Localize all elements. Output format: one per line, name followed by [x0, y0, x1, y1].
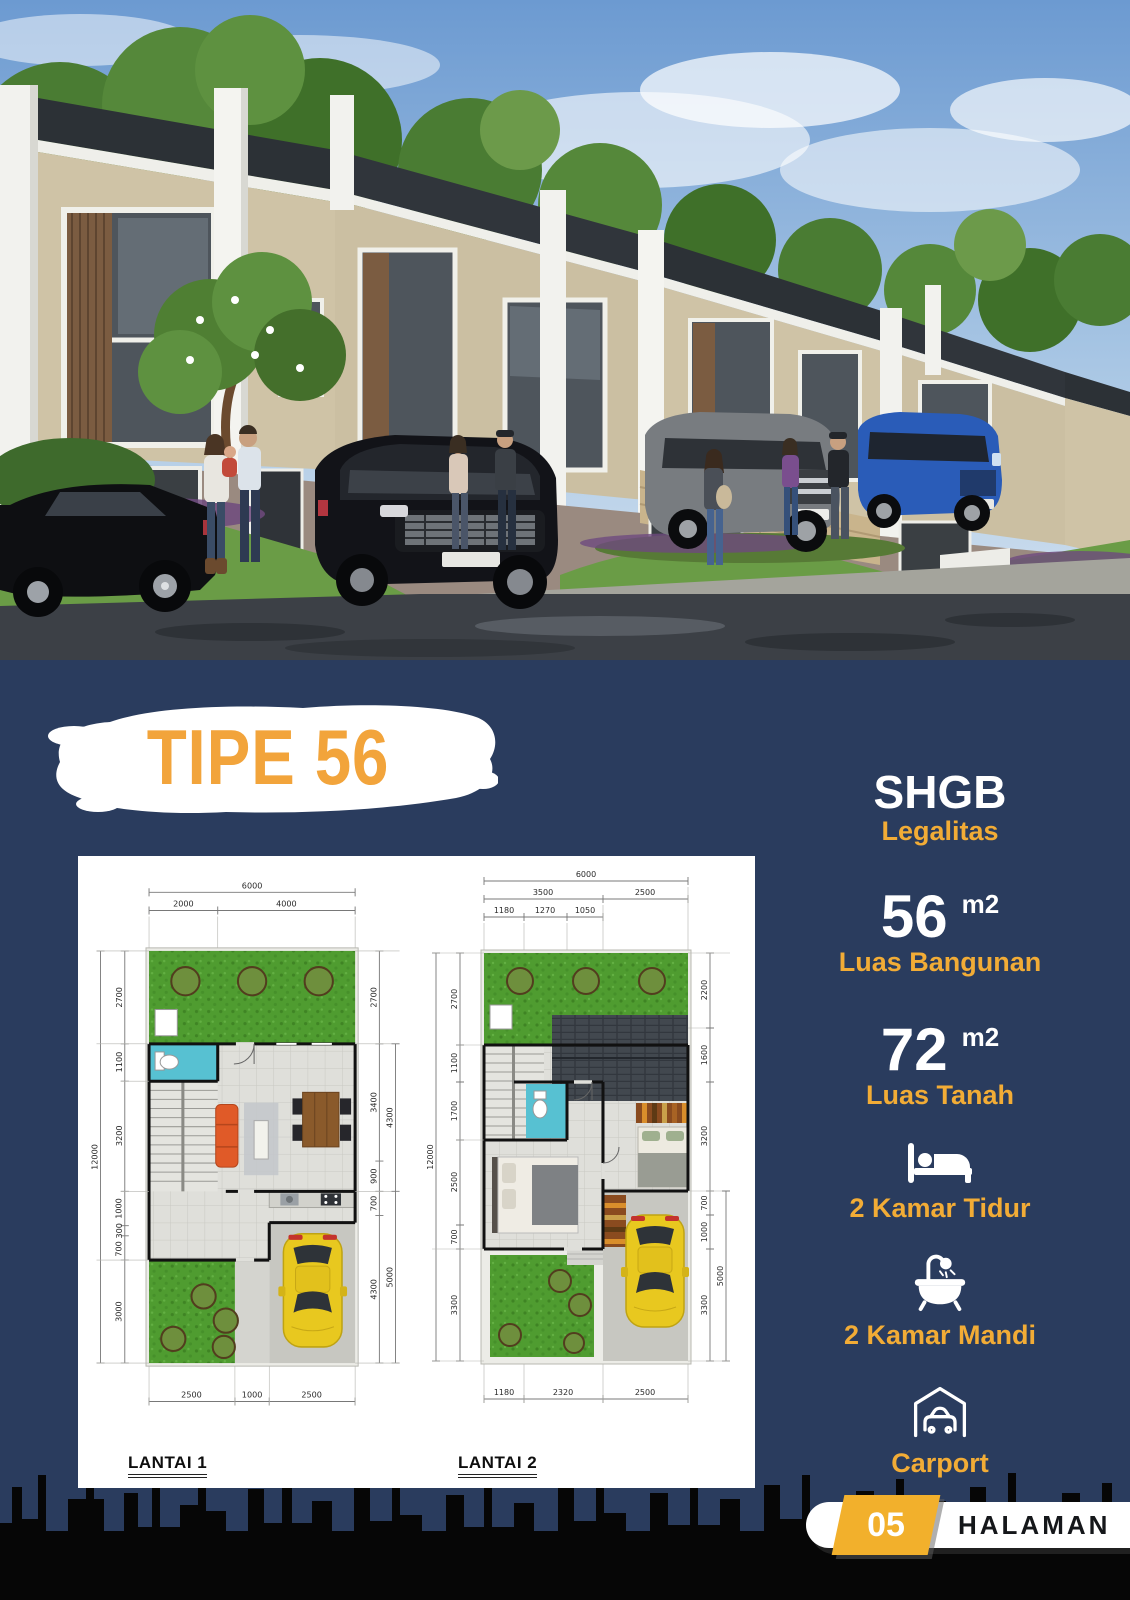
land-area-value: 72 — [881, 1016, 948, 1083]
dim-label: 700 — [368, 1196, 378, 1211]
wardrobe-side — [604, 1195, 626, 1247]
side-path — [235, 1260, 269, 1363]
dim-label: 2000 — [173, 898, 194, 908]
floorplan-lantai-2: 6000 3500 2500 1180 1270 1050 1180 2320 … — [414, 862, 750, 1482]
bed-left — [492, 1157, 578, 1233]
legal-label: Legalitas — [874, 816, 1007, 847]
plan-label-lantai-2: LANTAI 2 — [458, 1453, 537, 1478]
page-number-plate: 05 — [832, 1495, 941, 1555]
dim-label: 5000 — [716, 1266, 725, 1286]
dim-label: 2500 — [450, 1172, 459, 1192]
dim-label: 4300 — [385, 1107, 395, 1128]
dim-label: 6000 — [576, 870, 596, 879]
floorplan-panel: 6000 2000 4000 2500 1000 2500 12000 2700… — [78, 856, 755, 1488]
bed-right — [638, 1127, 688, 1187]
garden-trees — [171, 967, 333, 995]
blue-hatchback — [858, 412, 1002, 531]
dim-label: 4000 — [276, 898, 297, 908]
carport-label: Carport — [891, 1448, 989, 1479]
dim-label: 2500 — [635, 888, 655, 897]
dim-label: 1180 — [494, 906, 514, 915]
page-number: 05 — [838, 1495, 934, 1555]
land-area-label: Luas Tanah — [866, 1080, 1014, 1111]
dim-label: 700 — [114, 1241, 124, 1256]
carport-icon — [910, 1384, 970, 1440]
wardrobe-top — [636, 1103, 688, 1123]
feature-bedrooms: 2 Kamar Tidur — [849, 1141, 1030, 1224]
floorplan-drawing-1: 6000 2000 4000 2500 1000 2500 12000 2700… — [84, 862, 404, 1452]
dim-label: 300 — [114, 1223, 124, 1238]
car-topview — [278, 1234, 347, 1347]
car-topview — [621, 1215, 689, 1327]
kitchen — [269, 1191, 355, 1207]
dim-label: 1000 — [242, 1389, 263, 1399]
gray-suv — [645, 412, 840, 552]
dim-label: 1270 — [535, 906, 555, 915]
spec-legalitas: SHGB Legalitas — [874, 768, 1007, 847]
brochure-page: TIPE 56 — [0, 0, 1130, 1600]
spec-luas-tanah: 72m2 Luas Tanah — [866, 1020, 1014, 1111]
dim-label: 1700 — [450, 1101, 459, 1121]
bed-icon — [906, 1141, 974, 1185]
dim-label: 2700 — [114, 987, 124, 1008]
coffee-table — [254, 1121, 268, 1159]
bathrooms-label: 2 Kamar Mandi — [844, 1320, 1036, 1351]
hero-photo — [0, 0, 1130, 660]
feature-carport: Carport — [891, 1384, 989, 1479]
dim-label: 700 — [700, 1195, 709, 1210]
planter — [155, 1010, 177, 1036]
sofa — [216, 1104, 238, 1167]
dim-label: 3300 — [700, 1295, 709, 1315]
floorplan-drawing-2: 6000 3500 2500 1180 1270 1050 1180 2320 … — [414, 862, 744, 1452]
dim-label: 3200 — [700, 1126, 709, 1146]
dim-label: 12000 — [90, 1144, 100, 1170]
floorplan-lantai-1: 6000 2000 4000 2500 1000 2500 12000 2700… — [84, 862, 404, 1482]
dim-label: 1180 — [494, 1388, 514, 1397]
dim-label: 3200 — [114, 1126, 124, 1147]
legal-value: SHGB — [874, 768, 1007, 816]
page-number-badge: 05 HALAMAN — [806, 1502, 1130, 1548]
building-area-label: Luas Bangunan — [839, 947, 1042, 978]
dim-label: 3400 — [368, 1092, 378, 1113]
dim-label: 2500 — [181, 1389, 202, 1399]
dim-label: 1000 — [700, 1222, 709, 1242]
dim-label: 1600 — [700, 1045, 709, 1065]
dim-label: 1100 — [114, 1052, 124, 1073]
dim-label: 2500 — [301, 1389, 322, 1399]
dim-label: 700 — [450, 1229, 459, 1244]
spec-sidebar: SHGB Legalitas 56m2 Luas Bangunan 72m2 L… — [760, 742, 1120, 1479]
dim-label: 12000 — [426, 1144, 435, 1169]
dim-label: 2700 — [368, 987, 378, 1008]
dim-label: 2320 — [553, 1388, 573, 1397]
porch-steps — [567, 1249, 603, 1265]
planter — [490, 1005, 512, 1029]
title-banner: TIPE 56 — [38, 700, 498, 832]
dim-label: 5000 — [385, 1267, 395, 1288]
page-label: HALAMAN — [958, 1510, 1110, 1541]
dim-label: 6000 — [242, 880, 263, 890]
bedrooms-label: 2 Kamar Tidur — [849, 1193, 1030, 1224]
dim-label: 2700 — [450, 989, 459, 1009]
dim-label: 2200 — [700, 980, 709, 1000]
dim-label: 1050 — [575, 906, 595, 915]
bathtub-icon — [909, 1250, 971, 1312]
front-garden — [149, 951, 355, 1044]
feature-bathrooms: 2 Kamar Mandi — [844, 1250, 1036, 1351]
dim-label: 3000 — [114, 1301, 124, 1322]
land-area-unit: m2 — [962, 1022, 1000, 1052]
dim-label: 3300 — [450, 1295, 459, 1315]
building-area-value: 56 — [881, 883, 948, 950]
dim-label: 3500 — [533, 888, 553, 897]
dim-label: 4300 — [368, 1279, 378, 1300]
building-area-unit: m2 — [962, 889, 1000, 919]
page-title: TIPE 56 — [75, 718, 461, 796]
plan-label-lantai-1: LANTAI 1 — [128, 1453, 207, 1478]
dim-label: 1000 — [114, 1198, 124, 1219]
dim-label: 2500 — [635, 1388, 655, 1397]
spec-luas-bangunan: 56m2 Luas Bangunan — [839, 887, 1042, 978]
dim-label: 900 — [368, 1168, 378, 1183]
dim-label: 1100 — [450, 1053, 459, 1073]
